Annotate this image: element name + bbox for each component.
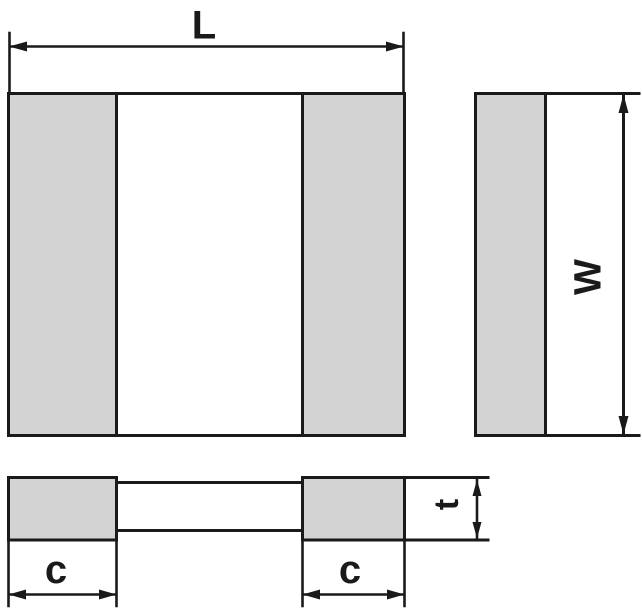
front-view-body bbox=[114, 483, 306, 531]
arrow-right-icon bbox=[99, 590, 117, 600]
arrow-up-icon bbox=[473, 480, 482, 497]
front-view-left-terminal bbox=[9, 478, 117, 541]
top-view-right-terminal bbox=[303, 94, 405, 436]
arrow-left-icon bbox=[9, 42, 27, 52]
terminal-right-label: c bbox=[339, 548, 361, 592]
side-view-terminal bbox=[476, 94, 546, 436]
dimension-terminal-right: c bbox=[303, 541, 405, 606]
side-view bbox=[476, 94, 640, 436]
top-view-left-terminal bbox=[9, 94, 117, 436]
length-label: L bbox=[192, 4, 216, 48]
top-view bbox=[9, 94, 405, 436]
dimension-thickness: t bbox=[405, 478, 489, 541]
width-label: W bbox=[568, 259, 610, 295]
thickness-label: t bbox=[428, 499, 466, 510]
arrow-right-icon bbox=[387, 590, 405, 600]
front-view bbox=[9, 478, 405, 541]
arrow-down-icon bbox=[473, 522, 482, 539]
dimension-diagram: L W t c bbox=[0, 0, 642, 612]
dimension-length: L bbox=[9, 4, 404, 93]
arrow-left-icon bbox=[9, 590, 27, 600]
terminal-left-label: c bbox=[45, 548, 67, 592]
front-view-right-terminal bbox=[303, 478, 405, 541]
arrow-left-icon bbox=[303, 590, 321, 600]
arrow-right-icon bbox=[386, 42, 404, 52]
dimension-terminal-left: c bbox=[9, 541, 117, 606]
